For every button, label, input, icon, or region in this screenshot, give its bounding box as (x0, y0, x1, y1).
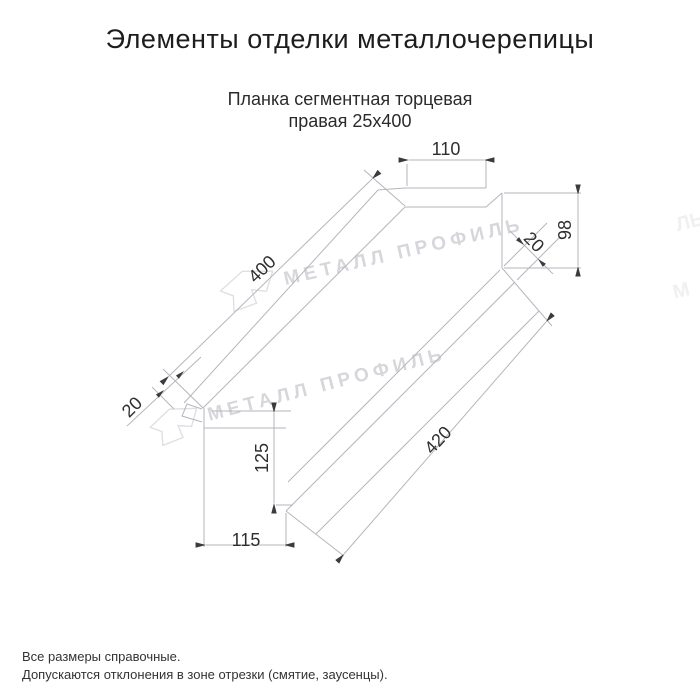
dim-label-98: 98 (555, 208, 575, 252)
dim-label-110: 110 (424, 139, 468, 159)
footnotes: Все размеры справочные. Допускаются откл… (22, 648, 388, 683)
footnote-line2: Допускаются отклонения в зоне отрезки (с… (22, 666, 388, 684)
bottom-cut-edge (286, 511, 344, 556)
catalog-page: Элементы отделки металлочерепицы Планка … (0, 0, 700, 700)
bottom-hem-edge (316, 311, 539, 534)
ext-line (152, 387, 174, 409)
technical-drawing (0, 0, 700, 700)
head-corner-cut (486, 193, 502, 207)
dim-label-115: 115 (224, 530, 268, 550)
top-face-upper-edge (203, 207, 405, 408)
cut-notch (182, 404, 202, 422)
dim-label-125: 125 (252, 436, 272, 480)
dim-line-400 (169, 179, 372, 376)
hem-top-edge (184, 190, 378, 403)
footnote-line1: Все размеры справочные. (22, 648, 388, 666)
top-face-lower-fold (288, 270, 500, 482)
ext-line (502, 268, 552, 326)
top-cut-edge (378, 188, 405, 190)
